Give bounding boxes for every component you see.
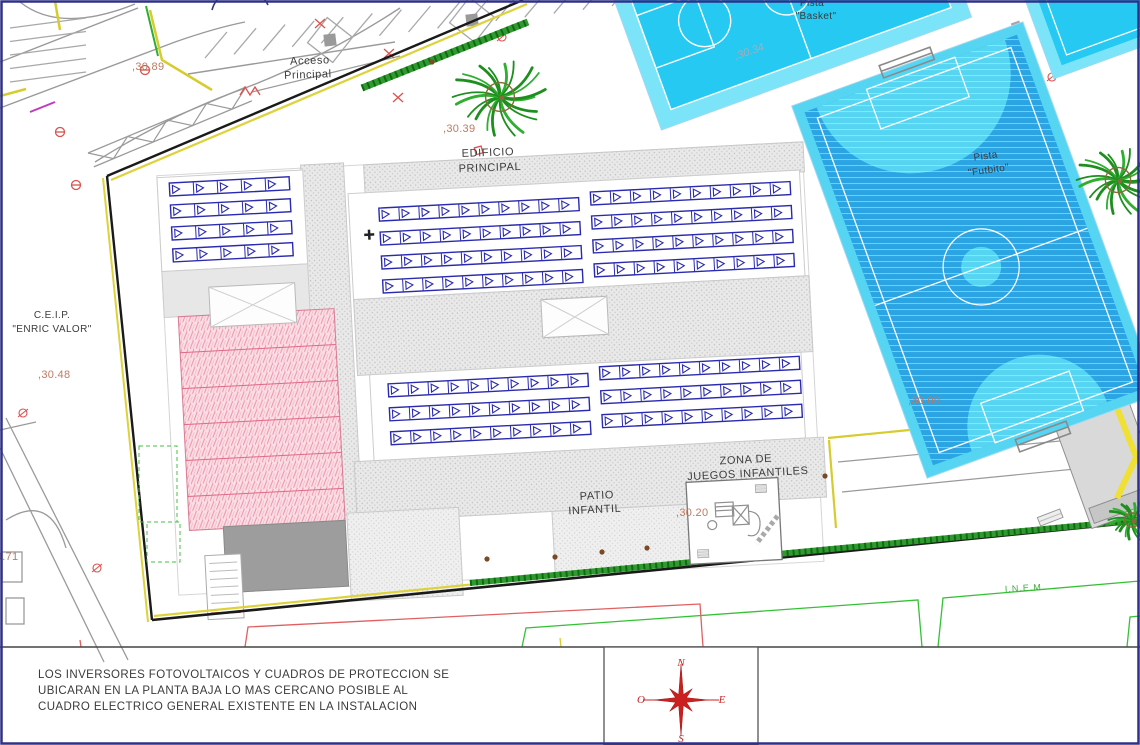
note-text: LOS INVERSORES FOTOVOLTAICOS Y CUADROS D… xyxy=(38,669,449,713)
roof-tile-pink xyxy=(178,309,345,531)
skylight xyxy=(209,283,297,327)
panel-group-roof-mid-lower-left xyxy=(388,373,591,444)
label-acceso-1: Acceso xyxy=(290,54,330,67)
label-ceip-1: C.E.I.P. xyxy=(34,310,70,321)
elev-acceso: ,30.89 xyxy=(132,61,164,73)
parking-row-top xyxy=(205,0,634,62)
label-inem: I.N.E.M. xyxy=(1005,582,1046,594)
compass-n: N xyxy=(676,657,685,669)
cad-site-plan: Acceso Principal ,30.89 ,30.39 EDIFICIO … xyxy=(0,0,1140,745)
note-line-1: LOS INVERSORES FOTOVOLTAICOS Y CUADROS D… xyxy=(38,669,449,681)
skylight xyxy=(541,296,609,337)
label-basket-2: "Basket" xyxy=(796,11,837,22)
compass-e: E xyxy=(718,694,726,706)
bench-icon xyxy=(1037,509,1063,526)
playground-zone xyxy=(686,478,782,565)
bottom-band: LOS INVERSORES FOTOVOLTAICOS Y CUADROS D… xyxy=(0,647,1140,745)
label-patio-1: PATIO xyxy=(579,489,614,503)
site-plan-canvas: Acceso Principal ,30.89 ,30.39 EDIFICIO … xyxy=(0,0,1140,745)
elev-edificio: ,30.39 xyxy=(443,123,475,135)
elev-ceip: ,30.48 xyxy=(38,369,70,381)
parking-stalls-left xyxy=(10,18,86,82)
compass-o: O xyxy=(637,694,645,706)
elev-oeste: ,29.71 xyxy=(0,551,18,563)
label-edificio-1: EDIFICIO xyxy=(461,146,514,160)
label-edificio-2: PRINCIPAL xyxy=(458,161,521,175)
label-acceso-2: Principal xyxy=(284,68,332,82)
panel-group-roof-mid-lower-right xyxy=(599,356,802,427)
court-bottom-left xyxy=(0,418,128,662)
note-line-3: CUADRO ELECTRICO GENERAL EXISTENTE EN LA… xyxy=(38,701,417,713)
label-ceip-2: "ENRIC VALOR" xyxy=(12,324,91,335)
elev-este: ,30.00 xyxy=(908,395,940,407)
note-line-2: UBICARAN EN LA PLANTA BAJA LO MAS CERCAN… xyxy=(38,685,408,697)
compass-box: N S E O xyxy=(604,647,758,745)
elev-zona: ,30.20 xyxy=(676,507,708,519)
